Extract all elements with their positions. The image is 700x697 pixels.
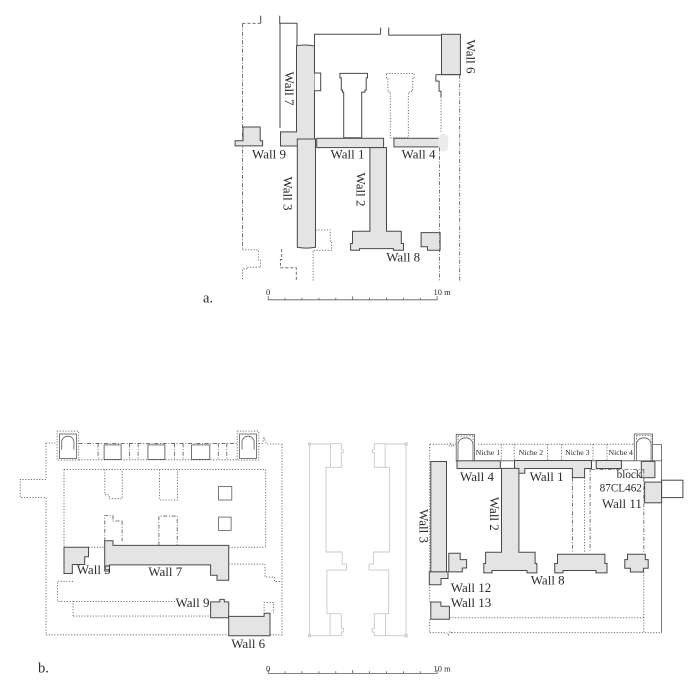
svg-text:block: block xyxy=(617,469,642,481)
svg-text:Wall 5: Wall 5 xyxy=(77,562,111,577)
svg-text:Wall 11: Wall 11 xyxy=(602,496,642,511)
svg-text:Wall 7: Wall 7 xyxy=(282,72,297,106)
svg-text:Wall 8: Wall 8 xyxy=(531,572,565,587)
svg-text:87CL462: 87CL462 xyxy=(600,483,642,495)
svg-text:Wall 4: Wall 4 xyxy=(402,147,436,162)
svg-text:Wall 13: Wall 13 xyxy=(451,595,491,610)
svg-text:Wall 6: Wall 6 xyxy=(464,40,479,74)
svg-text:Wall 3: Wall 3 xyxy=(281,177,296,211)
svg-text:Niche 2: Niche 2 xyxy=(519,448,544,457)
svg-text:0: 0 xyxy=(266,287,270,297)
svg-text:b.: b. xyxy=(38,661,49,677)
svg-text:Wall 1: Wall 1 xyxy=(530,469,564,484)
svg-text:10 m: 10 m xyxy=(434,663,452,673)
svg-text:Wall 4: Wall 4 xyxy=(460,469,494,484)
svg-text:Niche 3: Niche 3 xyxy=(565,448,590,457)
svg-text:Wall 8: Wall 8 xyxy=(386,250,420,265)
svg-text:Niche 1: Niche 1 xyxy=(476,448,501,457)
svg-text:Wall 3: Wall 3 xyxy=(417,509,432,543)
svg-text:Wall 9: Wall 9 xyxy=(176,595,210,610)
svg-text:Wall 7: Wall 7 xyxy=(148,564,182,579)
svg-text:Wall 6: Wall 6 xyxy=(231,636,265,651)
svg-text:Wall 1: Wall 1 xyxy=(331,147,365,162)
svg-text:Wall 2: Wall 2 xyxy=(354,173,369,207)
svg-text:Niche 4: Niche 4 xyxy=(608,448,633,457)
svg-text:a.: a. xyxy=(203,291,213,307)
svg-text:Wall 12: Wall 12 xyxy=(451,580,491,595)
svg-text:Wall 2: Wall 2 xyxy=(487,497,502,531)
svg-text:Wall 9: Wall 9 xyxy=(252,147,286,162)
svg-text:10 m: 10 m xyxy=(434,287,452,297)
svg-text:0: 0 xyxy=(266,664,270,674)
